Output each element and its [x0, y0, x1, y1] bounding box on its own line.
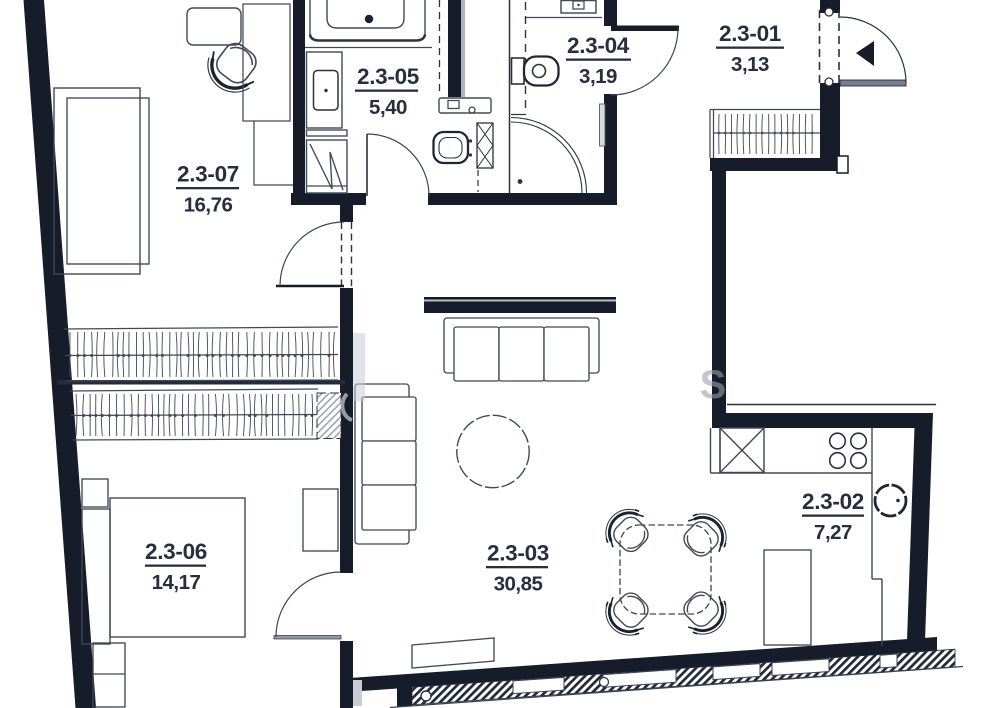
svg-text:2.3-06: 2.3-06 — [145, 539, 207, 564]
svg-text:3,19: 3,19 — [579, 65, 617, 88]
svg-text:3,13: 3,13 — [731, 53, 769, 76]
svg-text:2.3-04: 2.3-04 — [567, 33, 630, 58]
svg-text:30,85: 30,85 — [494, 573, 543, 596]
svg-text:7,27: 7,27 — [814, 521, 852, 544]
svg-text:2.3-07: 2.3-07 — [177, 162, 239, 187]
svg-text:2.3-02: 2.3-02 — [802, 489, 864, 514]
svg-text:5,40: 5,40 — [369, 96, 407, 119]
svg-text:S: S — [700, 363, 727, 407]
svg-text:14,17: 14,17 — [152, 571, 201, 594]
svg-text:2.3-03: 2.3-03 — [487, 541, 549, 566]
svg-text:16,76: 16,76 — [184, 194, 233, 217]
svg-text:2.3-01: 2.3-01 — [719, 21, 781, 46]
svg-text:2.3-05: 2.3-05 — [357, 64, 419, 89]
